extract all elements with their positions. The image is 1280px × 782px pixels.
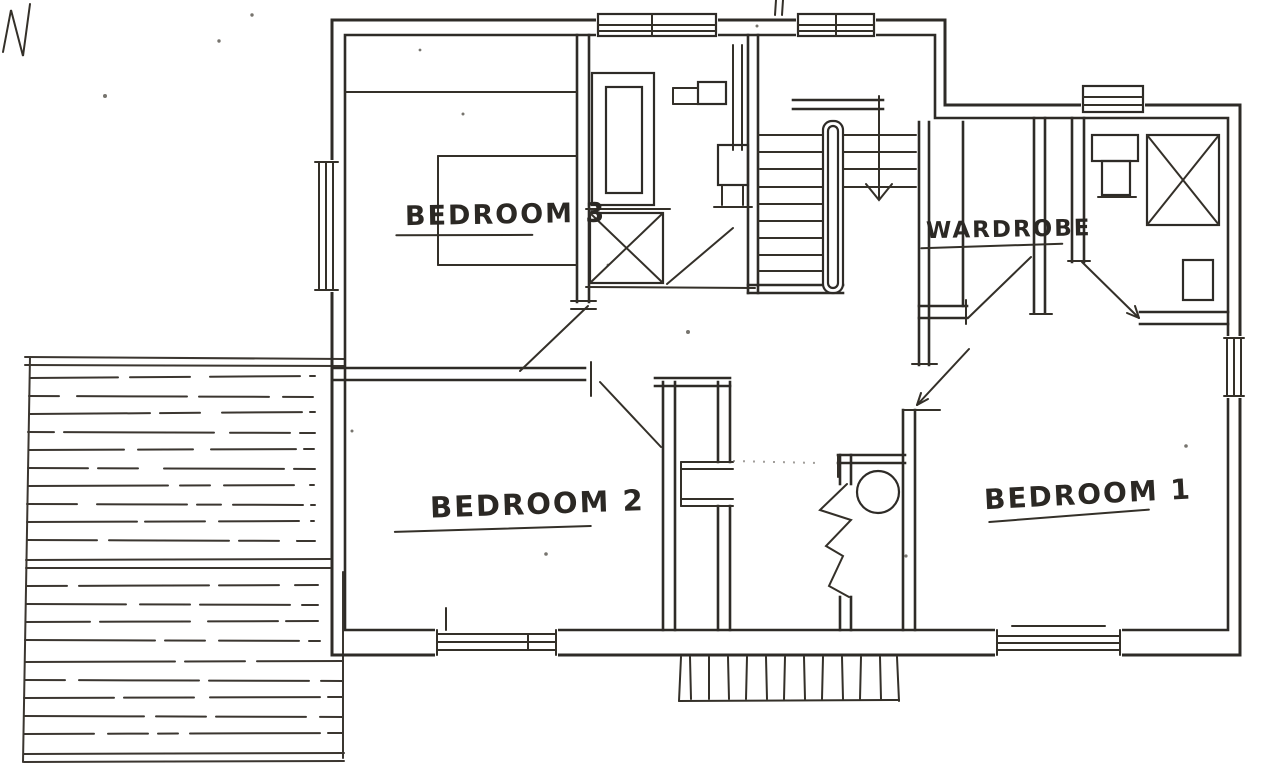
- svg-text:WARDROBE: WARDROBE: [926, 215, 1092, 244]
- window-left: [315, 160, 339, 292]
- window-right: [1224, 336, 1244, 398]
- stair-handrail: [823, 121, 843, 293]
- floor-plan-canvas: BEDROOM 3 WARDROBE BEDROOM 2 BEDROOM 1: [0, 0, 1280, 782]
- window-bottom-bedroom1: [995, 626, 1122, 658]
- window-wing-top: [1081, 84, 1145, 116]
- window-top-a: [596, 12, 718, 37]
- window-top-b: [796, 12, 876, 37]
- svg-text:BEDROOM 3: BEDROOM 3: [405, 198, 607, 233]
- floor-plan-sketch: BEDROOM 3 WARDROBE BEDROOM 2 BEDROOM 1: [0, 0, 1280, 782]
